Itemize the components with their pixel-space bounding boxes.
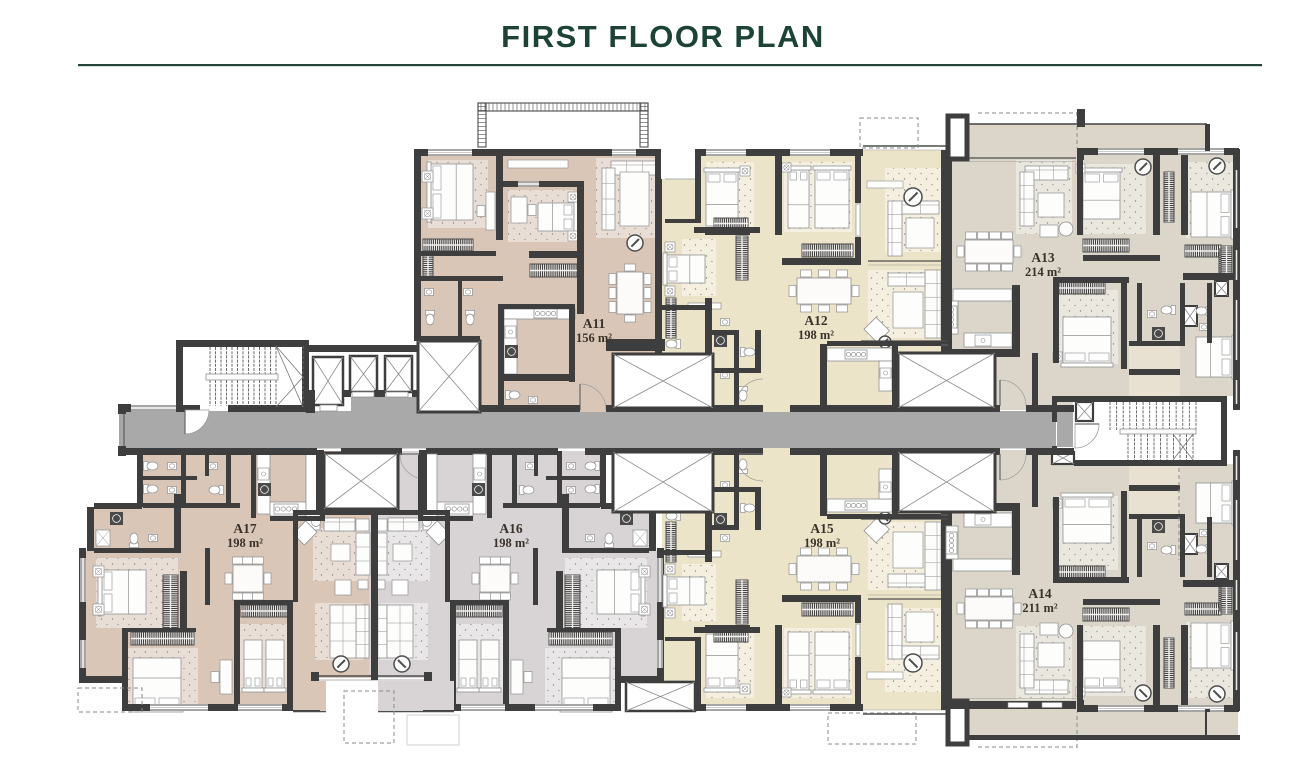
svg-text:A12: A12 [804, 313, 827, 328]
svg-text:211 m²: 211 m² [1022, 601, 1058, 615]
svg-text:198 m²: 198 m² [493, 536, 529, 550]
svg-text:198 m²: 198 m² [798, 328, 834, 342]
svg-text:A11: A11 [583, 316, 606, 331]
svg-text:A14: A14 [1028, 586, 1051, 601]
svg-text:A16: A16 [499, 521, 522, 536]
svg-text:FIRST FLOOR PLAN: FIRST FLOOR PLAN [501, 19, 825, 54]
svg-text:A13: A13 [1031, 250, 1054, 265]
svg-text:198 m²: 198 m² [227, 536, 263, 550]
svg-text:198 m²: 198 m² [804, 536, 840, 550]
svg-text:156 m²: 156 m² [576, 331, 612, 345]
svg-text:214 m²: 214 m² [1025, 265, 1061, 279]
svg-text:A15: A15 [810, 521, 833, 536]
svg-text:A17: A17 [233, 521, 256, 536]
